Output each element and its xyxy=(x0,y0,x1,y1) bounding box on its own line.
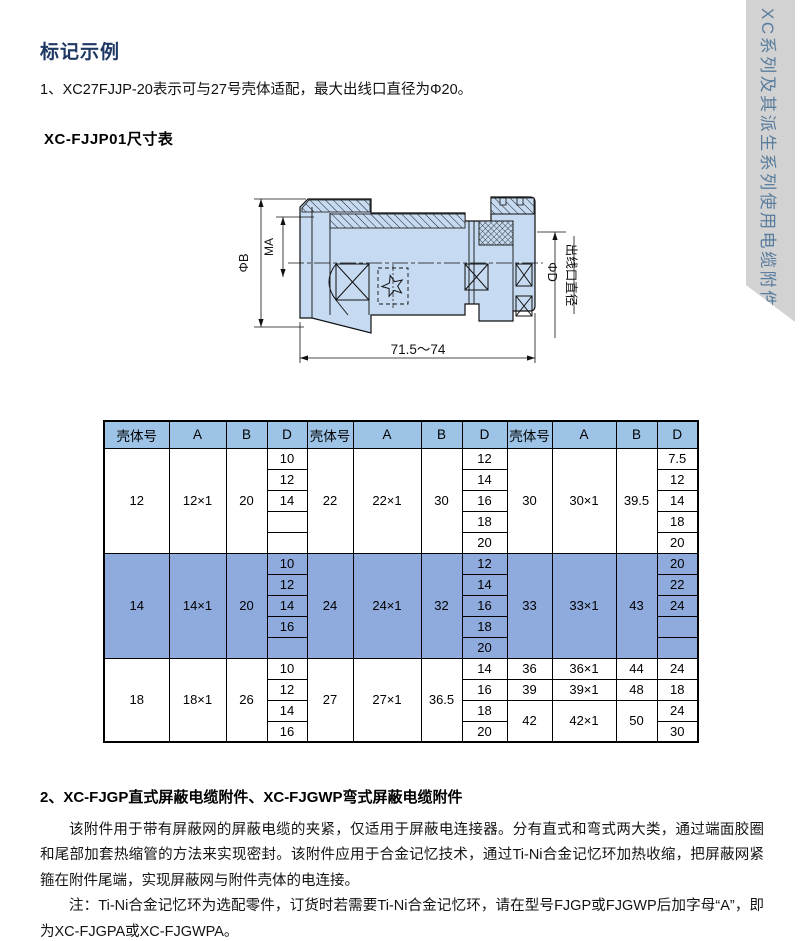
arrow-down xyxy=(258,319,263,327)
table-cell: 44 xyxy=(616,658,657,679)
table-cell: 32 xyxy=(421,553,462,658)
page-title: 标记示例 xyxy=(40,37,120,64)
table-cell: 22 xyxy=(657,574,698,595)
table-head: 壳体号ABD壳体号ABD壳体号ABD xyxy=(104,421,698,448)
table-cell: 30 xyxy=(507,448,552,553)
table-cell: 10 xyxy=(267,658,307,679)
table-cell: 22×1 xyxy=(353,448,421,553)
section2-title: 2、XC-FJGP直式屏蔽电缆附件、XC-FJGWP弯式屏蔽电缆附件 xyxy=(40,786,463,807)
dim-label-outlet: 出线口直径 xyxy=(564,244,578,307)
table-cell: 20 xyxy=(226,448,267,553)
table-cell: 36 xyxy=(507,658,552,679)
table-cell: 20 xyxy=(226,553,267,658)
arrow-up xyxy=(280,217,285,225)
table-cell: 16 xyxy=(462,679,507,700)
table-cell: 10 xyxy=(267,553,307,574)
table-header-cell: 壳体号 xyxy=(507,421,552,448)
arrow-left xyxy=(300,355,308,360)
table-cell: 14 xyxy=(104,553,169,658)
table-cell: 16 xyxy=(462,595,507,616)
table-cell: 18 xyxy=(462,616,507,637)
table-cell: 39.5 xyxy=(616,448,657,553)
table-cell xyxy=(267,511,307,532)
table-header-cell: A xyxy=(169,421,226,448)
table-header-cell: B xyxy=(226,421,267,448)
table-header-cell: A xyxy=(353,421,421,448)
table-cell xyxy=(267,532,307,553)
table-cell: 27 xyxy=(307,658,353,742)
table-row: 1414×120102424×132123333×14320 xyxy=(104,553,698,574)
table-cell: 7.5 xyxy=(657,448,698,469)
table-cell: 12 xyxy=(657,469,698,490)
table-header-cell: D xyxy=(462,421,507,448)
rear-cap-hatch xyxy=(491,198,534,214)
dimension-table-title: XC-FJJP01尺寸表 xyxy=(44,128,173,149)
table-cell: 27×1 xyxy=(353,658,421,742)
chapter-side-tab: XC系列及其派生系列使用电缆附件 xyxy=(746,0,795,322)
barrel-hatch xyxy=(330,214,465,228)
table-cell: 14×1 xyxy=(169,553,226,658)
document-page: 标记示例 1、XC27FJJP-20表示可与27号壳体适配，最大出线口直径为Φ2… xyxy=(0,0,800,941)
table-cell: 33×1 xyxy=(552,553,616,658)
table-cell: 12 xyxy=(104,448,169,553)
table-cell xyxy=(267,637,307,658)
table-cell: 18×1 xyxy=(169,658,226,742)
arrow-right xyxy=(527,355,535,360)
table-cell: 18 xyxy=(104,658,169,742)
marking-example-note: 1、XC27FJJP-20表示可与27号壳体适配，最大出线口直径为Φ20。 xyxy=(40,78,472,99)
table-header-cell: 壳体号 xyxy=(104,421,169,448)
table-cell: 18 xyxy=(462,700,507,721)
table-row: 1818×126102727×136.5143636×14424 xyxy=(104,658,698,679)
table-row: 1212×120102222×130123030×139.57.5 xyxy=(104,448,698,469)
table-cell: 14 xyxy=(267,490,307,511)
table-body: 1212×120102222×130123030×139.57.51214121… xyxy=(104,448,698,742)
table-cell: 18 xyxy=(462,511,507,532)
table-cell: 18 xyxy=(657,679,698,700)
table-cell: 24 xyxy=(657,595,698,616)
dimension-table: 壳体号ABD壳体号ABD壳体号ABD 1212×120102222×130123… xyxy=(103,420,699,743)
table-cell: 12 xyxy=(462,553,507,574)
table-cell: 16 xyxy=(267,616,307,637)
table-cell: 14 xyxy=(462,469,507,490)
paragraph: 注：Ti-Ni合金记忆环为选配零件，订货时若需要Ti-Ni合金记忆环，请在型号F… xyxy=(40,894,764,941)
knurl-band xyxy=(479,221,513,245)
table-header-cell: 壳体号 xyxy=(307,421,353,448)
table-cell: 18 xyxy=(657,511,698,532)
table-cell: 43 xyxy=(616,553,657,658)
table-cell: 12 xyxy=(267,574,307,595)
table-cell: 42 xyxy=(507,700,552,742)
table-cell: 14 xyxy=(267,700,307,721)
connector-drawing: ΦB MA ΦD 出线口直径 71.5～74 xyxy=(228,180,593,375)
table-cell: 24 xyxy=(307,553,353,658)
paragraph: 该附件用于带有屏蔽网的屏蔽电缆的夹紧，仅适用于屏蔽电连接器。分有直式和弯式两大类… xyxy=(40,818,764,894)
table-cell: 14 xyxy=(462,574,507,595)
arrow-up xyxy=(552,232,557,240)
table-cell: 24×1 xyxy=(353,553,421,658)
dim-label-ma: MA xyxy=(262,238,276,256)
table-cell: 14 xyxy=(267,595,307,616)
table-cell: 14 xyxy=(657,490,698,511)
table-cell xyxy=(657,637,698,658)
table-cell: 12 xyxy=(267,469,307,490)
table-cell: 24 xyxy=(657,700,698,721)
dim-label-length: 71.5～74 xyxy=(391,342,446,357)
table-cell: 42×1 xyxy=(552,700,616,742)
table-cell xyxy=(657,616,698,637)
table-cell: 10 xyxy=(267,448,307,469)
table-header-cell: B xyxy=(616,421,657,448)
rear-cap-notch xyxy=(500,198,506,205)
table-cell: 36.5 xyxy=(421,658,462,742)
table-cell: 39×1 xyxy=(552,679,616,700)
table-cell: 16 xyxy=(462,490,507,511)
table-cell: 20 xyxy=(657,553,698,574)
dim-label-phi-b: ΦB xyxy=(236,253,251,272)
table-cell: 30×1 xyxy=(552,448,616,553)
table-header-cell: A xyxy=(552,421,616,448)
arrow-down xyxy=(280,269,285,277)
table-cell: 36×1 xyxy=(552,658,616,679)
table-cell: 24 xyxy=(657,658,698,679)
table-cell: 33 xyxy=(507,553,552,658)
table-cell: 20 xyxy=(462,721,507,742)
table-header-cell: D xyxy=(267,421,307,448)
table-cell: 39 xyxy=(507,679,552,700)
table-cell: 30 xyxy=(657,721,698,742)
chapter-side-tab-label: XC系列及其派生系列使用电缆附件 xyxy=(757,8,782,310)
table-cell: 30 xyxy=(421,448,462,553)
table-cell: 16 xyxy=(267,721,307,742)
table-cell: 20 xyxy=(462,637,507,658)
table-cell: 12 xyxy=(462,448,507,469)
table-cell: 12 xyxy=(267,679,307,700)
table-cell: 48 xyxy=(616,679,657,700)
table-cell: 12×1 xyxy=(169,448,226,553)
table-cell: 50 xyxy=(616,700,657,742)
table-cell: 14 xyxy=(462,658,507,679)
table-cell: 26 xyxy=(226,658,267,742)
section2-body: 该附件用于带有屏蔽网的屏蔽电缆的夹紧，仅适用于屏蔽电连接器。分有直式和弯式两大类… xyxy=(40,818,764,941)
table-header-cell: B xyxy=(421,421,462,448)
table-cell: 20 xyxy=(462,532,507,553)
table-header-cell: D xyxy=(657,421,698,448)
rear-cap-notch xyxy=(517,198,523,205)
dim-label-phi-d: ΦD xyxy=(545,262,560,282)
table-cell: 22 xyxy=(307,448,353,553)
arrow-up xyxy=(258,199,263,207)
table-cell: 20 xyxy=(657,532,698,553)
